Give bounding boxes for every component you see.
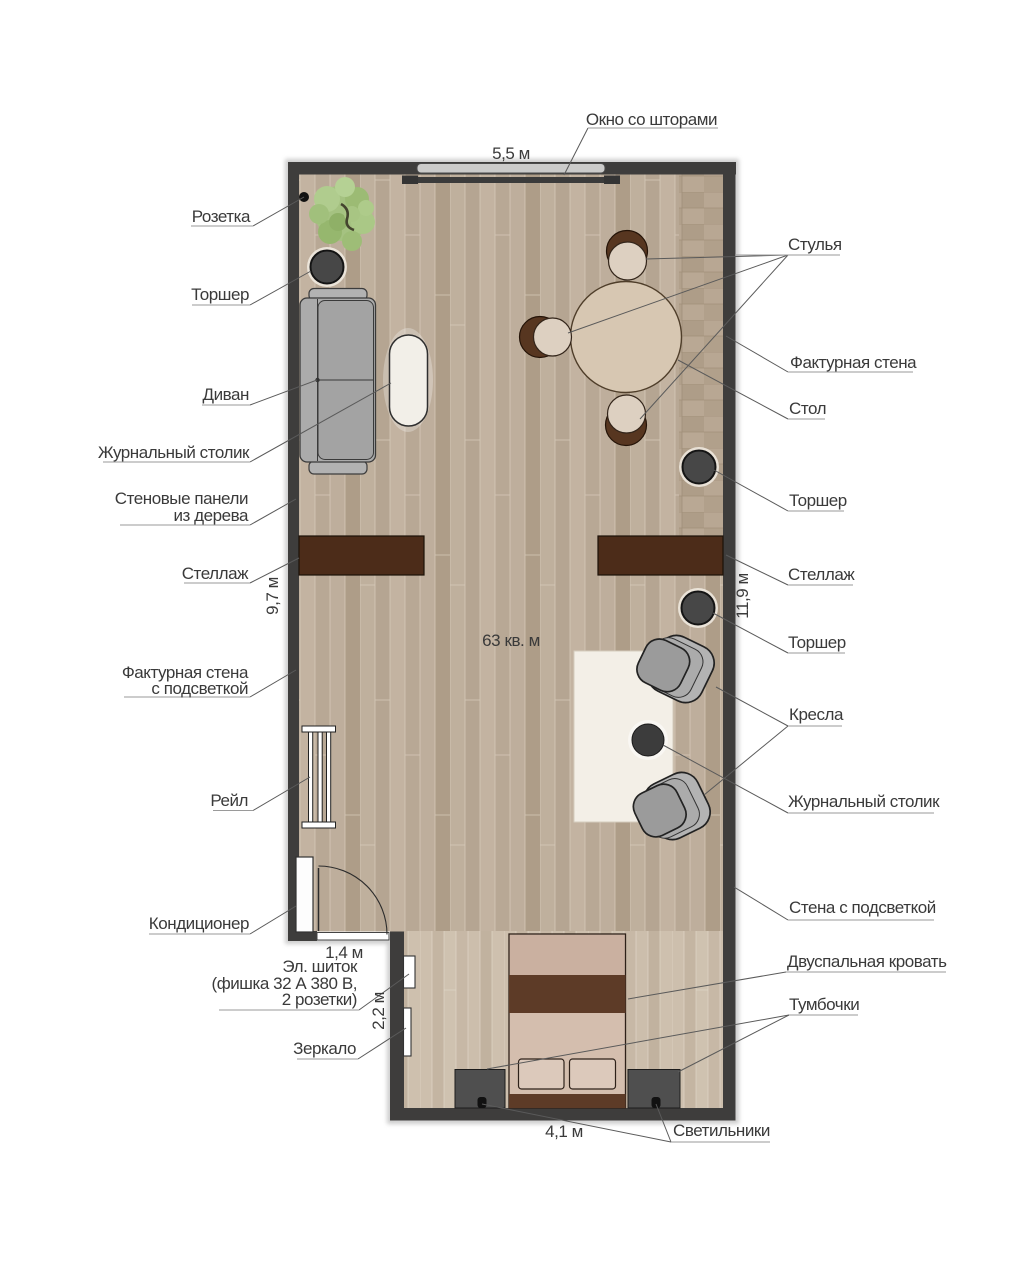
svg-text:9,7 м: 9,7 м: [263, 577, 282, 615]
svg-text:2 розетки): 2 розетки): [282, 990, 357, 1009]
svg-text:Фактурная стена: Фактурная стена: [790, 353, 917, 372]
svg-text:Журнальный столик: Журнальный столик: [788, 792, 940, 811]
svg-text:Двуспальная кровать: Двуспальная кровать: [787, 952, 947, 971]
svg-text:Стулья: Стулья: [788, 235, 842, 254]
svg-text:Светильники: Светильники: [673, 1121, 770, 1140]
svg-text:Стеллаж: Стеллаж: [788, 565, 855, 584]
svg-text:Зеркало: Зеркало: [293, 1039, 356, 1058]
svg-text:Кресла: Кресла: [789, 705, 844, 724]
svg-text:1,4 м: 1,4 м: [325, 943, 363, 962]
svg-text:Кондиционер: Кондиционер: [149, 914, 249, 933]
svg-text:Розетка: Розетка: [192, 207, 251, 226]
svg-text:Стеллаж: Стеллаж: [182, 564, 249, 583]
svg-text:Стена с подсветкой: Стена с подсветкой: [789, 898, 936, 917]
svg-text:Рейл: Рейл: [210, 791, 248, 810]
svg-text:Тумбочки: Тумбочки: [789, 995, 859, 1014]
svg-text:Стол: Стол: [789, 399, 826, 418]
svg-text:Торшер: Торшер: [788, 633, 846, 652]
svg-text:2,2 м: 2,2 м: [369, 992, 388, 1030]
svg-text:Диван: Диван: [203, 385, 250, 404]
svg-text:Журнальный столик: Журнальный столик: [98, 443, 250, 462]
svg-text:с подсветкой: с подсветкой: [151, 679, 248, 698]
svg-text:4,1 м: 4,1 м: [545, 1122, 583, 1141]
svg-text:Торшер: Торшер: [789, 491, 847, 510]
svg-text:Торшер: Торшер: [191, 285, 249, 304]
svg-text:11,9 м: 11,9 м: [733, 573, 752, 619]
svg-text:63 кв. м: 63 кв. м: [482, 631, 540, 650]
svg-text:из дерева: из дерева: [173, 506, 249, 525]
svg-text:5,5 м: 5,5 м: [492, 144, 530, 163]
svg-text:Окно со шторами: Окно со шторами: [586, 110, 717, 129]
